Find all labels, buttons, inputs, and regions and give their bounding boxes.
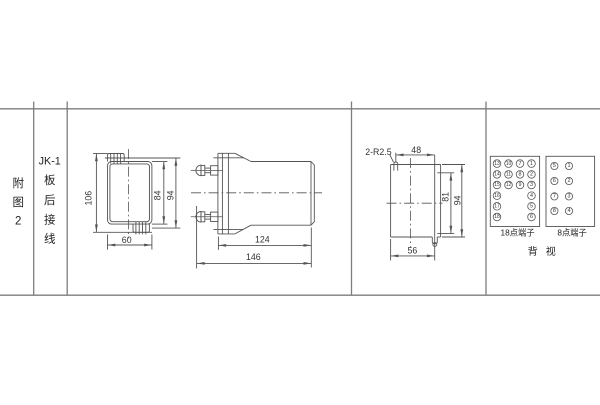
svg-text:8: 8 xyxy=(519,172,522,178)
svg-text:8: 8 xyxy=(553,208,556,214)
svg-text:2: 2 xyxy=(530,172,533,178)
svg-text:18点端子: 18点端子 xyxy=(501,227,535,237)
svg-text:15: 15 xyxy=(494,182,500,188)
svg-text:60: 60 xyxy=(122,235,132,245)
svg-text:线: 线 xyxy=(44,232,56,246)
svg-text:附: 附 xyxy=(12,176,24,190)
svg-text:板: 板 xyxy=(44,173,56,187)
svg-text:6: 6 xyxy=(553,178,556,184)
svg-text:94: 94 xyxy=(452,195,462,205)
svg-text:7: 7 xyxy=(553,194,556,200)
svg-text:2-R2.5: 2-R2.5 xyxy=(365,147,392,157)
svg-text:图: 图 xyxy=(12,196,24,209)
svg-text:16: 16 xyxy=(494,193,500,199)
svg-text:14: 14 xyxy=(494,172,500,178)
svg-text:146: 146 xyxy=(246,252,261,262)
svg-text:2: 2 xyxy=(15,215,21,227)
svg-text:4: 4 xyxy=(568,208,571,214)
svg-text:13: 13 xyxy=(494,161,500,167)
svg-text:124: 124 xyxy=(255,235,270,245)
svg-text:48: 48 xyxy=(411,145,421,155)
svg-text:106: 106 xyxy=(84,191,94,206)
svg-text:背: 背 xyxy=(528,245,538,258)
svg-text:12: 12 xyxy=(506,182,512,188)
svg-text:18: 18 xyxy=(494,214,500,220)
svg-text:1: 1 xyxy=(530,161,533,167)
svg-text:3: 3 xyxy=(568,194,571,200)
svg-text:7: 7 xyxy=(519,161,522,167)
svg-text:2: 2 xyxy=(568,178,571,184)
svg-text:5: 5 xyxy=(553,163,556,169)
svg-text:JK-1: JK-1 xyxy=(39,155,61,167)
svg-text:3: 3 xyxy=(530,182,533,188)
svg-text:接: 接 xyxy=(44,214,56,227)
svg-text:17: 17 xyxy=(494,204,500,210)
svg-text:4: 4 xyxy=(530,193,533,199)
svg-text:10: 10 xyxy=(506,161,512,167)
svg-text:6: 6 xyxy=(530,214,533,220)
svg-text:9: 9 xyxy=(519,182,522,188)
svg-text:81: 81 xyxy=(441,192,451,202)
svg-text:视: 视 xyxy=(546,245,556,258)
svg-text:94: 94 xyxy=(165,190,175,200)
svg-text:84: 84 xyxy=(153,190,163,200)
svg-text:5: 5 xyxy=(530,204,533,210)
svg-text:后: 后 xyxy=(44,194,56,207)
svg-text:8点端子: 8点端子 xyxy=(557,227,587,237)
svg-text:11: 11 xyxy=(506,172,511,178)
svg-text:56: 56 xyxy=(408,245,418,255)
svg-text:1: 1 xyxy=(568,163,571,169)
